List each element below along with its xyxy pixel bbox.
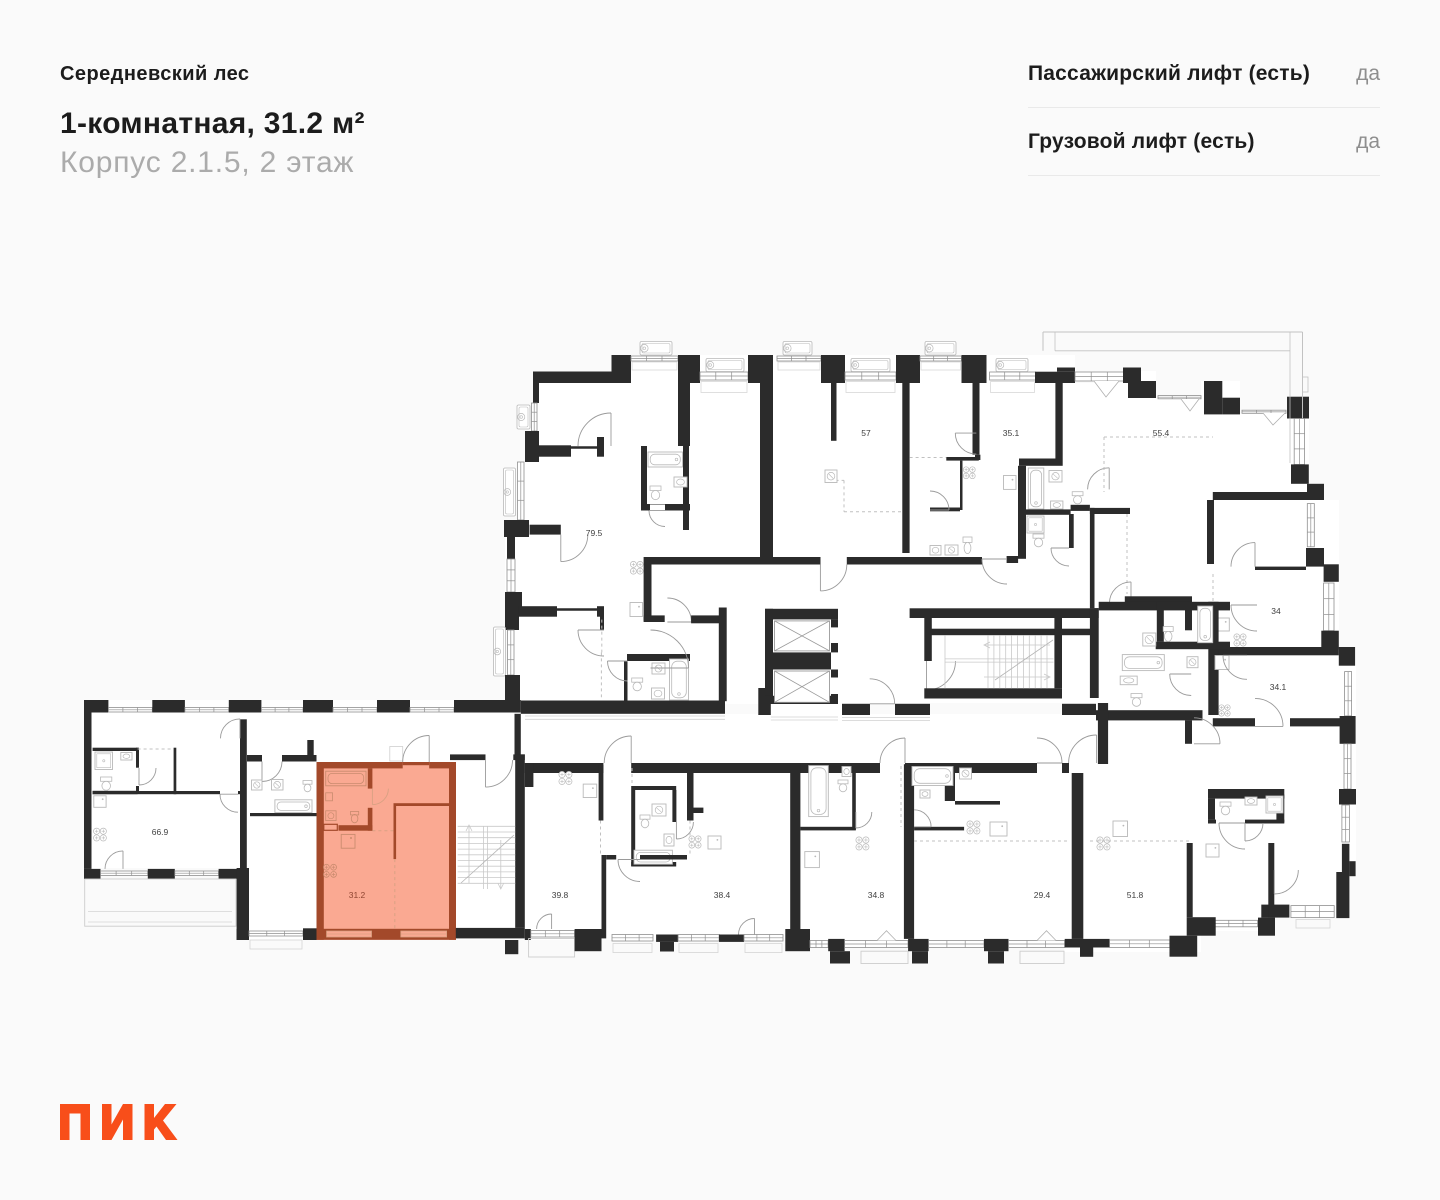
svg-text:55.4: 55.4 bbox=[1153, 428, 1170, 438]
svg-text:29.4: 29.4 bbox=[1034, 890, 1051, 900]
svg-text:38.4: 38.4 bbox=[714, 890, 731, 900]
svg-text:35.1: 35.1 bbox=[1003, 428, 1020, 438]
svg-text:57: 57 bbox=[861, 428, 871, 438]
svg-text:34: 34 bbox=[1271, 606, 1281, 616]
svg-text:31.2: 31.2 bbox=[349, 890, 366, 900]
svg-text:34.8: 34.8 bbox=[868, 890, 885, 900]
svg-text:34.1: 34.1 bbox=[1270, 682, 1287, 692]
svg-text:51.8: 51.8 bbox=[1127, 890, 1144, 900]
svg-text:66.9: 66.9 bbox=[152, 827, 169, 837]
svg-text:39.8: 39.8 bbox=[552, 890, 569, 900]
svg-text:79.5: 79.5 bbox=[586, 528, 603, 538]
